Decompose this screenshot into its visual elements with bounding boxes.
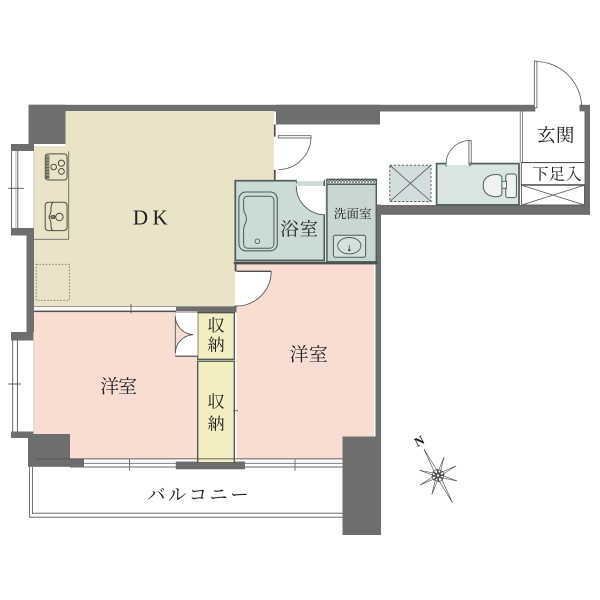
- svg-text:N: N: [412, 432, 428, 450]
- svg-text:DK: DK: [133, 205, 172, 229]
